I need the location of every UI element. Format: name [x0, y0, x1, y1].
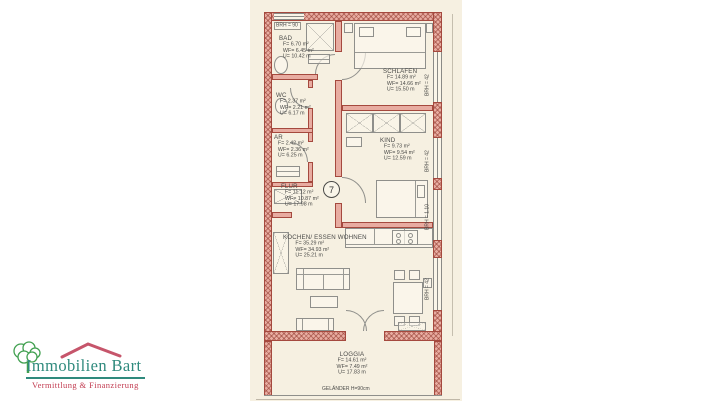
room-perimeter: U= 6.25 m [278, 152, 309, 158]
bed-schlafen [354, 23, 426, 69]
dining-table [393, 282, 423, 314]
corner-cabinet [398, 322, 426, 331]
pillow [359, 27, 374, 37]
room-perimeter: U= 17.98 m [285, 201, 319, 207]
room-label-wc: WC F= 2.37 m² WF= 2.21 m² U= 6.17 m [276, 92, 338, 136]
kind-wardrobe [346, 113, 373, 133]
loggia-railing-line [264, 395, 442, 396]
logo-tagline: Vermittlung & Finanzierung [32, 380, 139, 390]
sofa-armrest [302, 319, 303, 330]
loggia-wall-right [434, 341, 442, 396]
window-flur [433, 190, 442, 240]
coffee-table [310, 296, 338, 308]
wall-right-segment [433, 240, 442, 258]
wall-left [264, 12, 272, 341]
logo-name: Immobilien Bart [26, 356, 145, 379]
blanket-line [415, 181, 416, 217]
logo: Immobilien Bart Vermittlung & Finanzieru… [10, 338, 160, 402]
brh-label-bad-text: BRH = 90 [275, 23, 288, 28]
room-label-bad: BAD F= 6.70 m² WF= 6.45 m² U= 10.42 m [279, 35, 341, 79]
room-perimeter: U= 17.83 m [318, 369, 385, 375]
dimension-line [452, 14, 453, 336]
kind-desk [346, 137, 362, 147]
room-perimeter: U= 10.42 m [283, 53, 314, 59]
room-perimeter: U= 12.59 m [384, 155, 415, 161]
sofa-armrest [328, 319, 329, 330]
kind-wardrobe [400, 113, 426, 133]
nightstand-right [426, 23, 433, 33]
wall-bottom-left [264, 331, 346, 341]
floor-plan-page: BRH = 90 BRH = 42 BRH = 42 BRH = 1.10 BR… [0, 0, 720, 405]
nightstand-left [344, 23, 353, 33]
railing-note: GELÄNDER H=90cm [322, 386, 370, 392]
room-perimeter: U= 6.17 m [280, 110, 311, 116]
room-label-kind: KIND F= 9.73 m² WF= 9.54 m² U= 12.59 m [380, 137, 442, 181]
room-perimeter: U= 25.21 m [295, 252, 366, 258]
wall-bottom-right [384, 331, 442, 341]
unit-number-badge: 7 [323, 181, 340, 198]
blanket-line [355, 52, 425, 53]
sofa-small [296, 318, 334, 331]
room-label-kochen-essen-wohnen: KOCHEN/ ESSEN WOHNEN F= 35.29 m² WF= 34.… [283, 234, 433, 278]
pillow [406, 27, 421, 37]
brh-label-bad: BRH = 90 [274, 22, 301, 30]
room-label-schlafen: SCHLAFEN F= 14.89 m² WF= 14.66 m² U= 15.… [383, 68, 450, 112]
kind-wardrobe [373, 113, 400, 133]
frame-line [256, 399, 460, 400]
loggia-wall-left [264, 341, 272, 396]
bed-kind [376, 180, 428, 218]
wall-right-segment [433, 12, 442, 52]
room-label-ar: AR F= 2.42 m² WF= 2.36 m² U= 6.25 m [274, 134, 336, 178]
wall-corridor [308, 80, 313, 88]
unit-number: 7 [329, 185, 334, 195]
window-wohnen [433, 258, 442, 310]
window-bad [274, 13, 304, 20]
pillow [417, 185, 425, 198]
room-perimeter: U= 15.50 m [387, 86, 421, 92]
